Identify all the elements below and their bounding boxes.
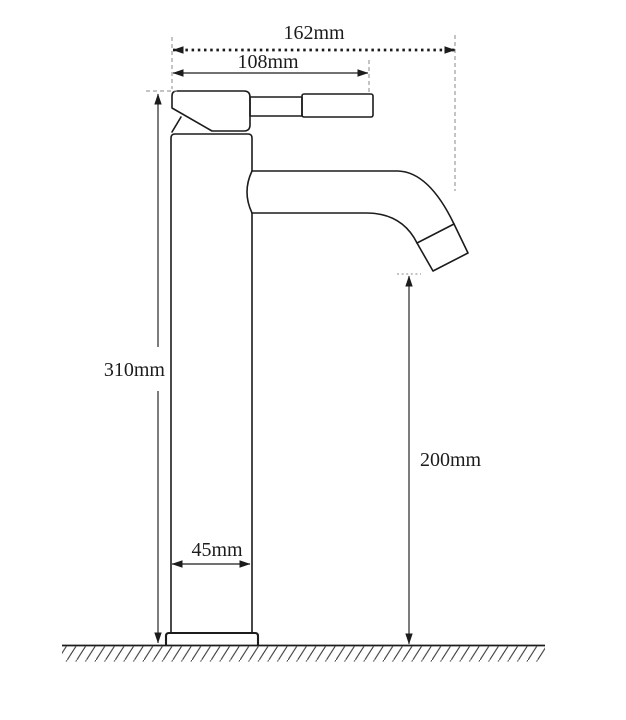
spout-top-edge bbox=[252, 171, 454, 224]
label-body-width: 45mm bbox=[191, 539, 243, 561]
spout-bottom-edge bbox=[252, 213, 417, 243]
handle-lever-joint-line bbox=[172, 117, 181, 132]
label-handle-length: 108mm bbox=[237, 51, 299, 73]
dimension-labels: 162mm 108mm 310mm 200mm 45mm bbox=[104, 22, 482, 561]
label-overall-width: 162mm bbox=[283, 22, 345, 44]
aerator-line bbox=[417, 224, 454, 243]
label-total-height: 310mm bbox=[104, 359, 166, 381]
handle-grip bbox=[302, 94, 373, 117]
handle-head-outline bbox=[172, 91, 250, 131]
faucet-dimension-diagram: 162mm 108mm 310mm 200mm 45mm bbox=[0, 0, 626, 720]
handle-arm bbox=[250, 97, 302, 116]
ground bbox=[62, 646, 545, 662]
ground-hatching bbox=[62, 647, 545, 662]
spout-tip-outline bbox=[417, 224, 468, 271]
base-flange-outline bbox=[166, 633, 258, 645]
technical-drawing-canvas: 162mm 108mm 310mm 200mm 45mm bbox=[0, 0, 626, 720]
spout-back-arc bbox=[247, 171, 252, 213]
faucet-outline bbox=[166, 91, 468, 645]
label-spout-outlet-height: 200mm bbox=[420, 449, 482, 471]
extension-lines bbox=[146, 35, 455, 274]
